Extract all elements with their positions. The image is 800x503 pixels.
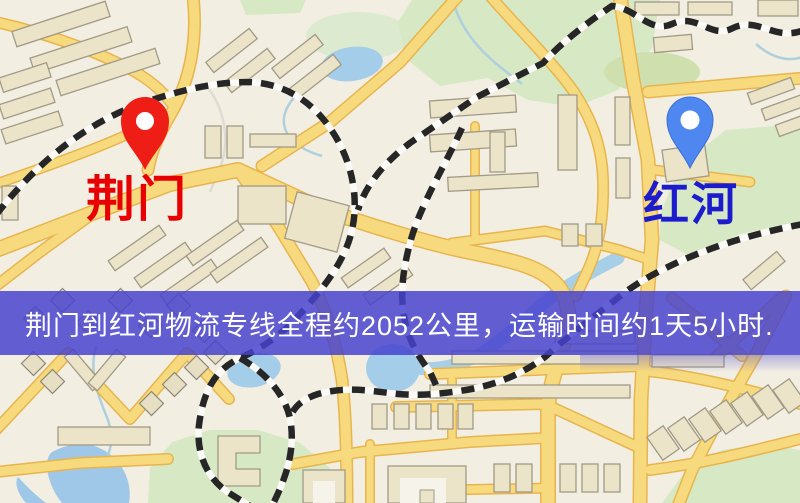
- building: [394, 404, 409, 429]
- building: [458, 404, 473, 429]
- building: [688, 2, 732, 15]
- building: [416, 404, 431, 429]
- building: [615, 97, 630, 145]
- building: [558, 95, 577, 170]
- origin-marker-red-pin-icon: [119, 96, 171, 172]
- route-info-banner: 荆门到红河物流专线全程约2052公里，运输时间约1天5小时.: [0, 291, 800, 355]
- building: [604, 464, 620, 492]
- destination-marker-blue-pin-icon: [665, 96, 715, 170]
- building: [516, 464, 532, 492]
- map-image: [0, 0, 800, 503]
- building: [438, 404, 453, 429]
- building: [58, 427, 150, 445]
- building: [653, 34, 692, 52]
- building: [372, 404, 387, 429]
- building: [586, 224, 602, 246]
- building: [560, 464, 576, 492]
- route-info-text: 荆门到红河物流专线全程约2052公里，运输时间约1天5小时.: [25, 304, 774, 343]
- building: [238, 186, 286, 224]
- building: [758, 0, 798, 16]
- building: [582, 464, 598, 492]
- building: [494, 464, 510, 492]
- logistics-route-map: 荆门 红河 荆门到红河物流专线全程约2052公里，运输时间约1天5小时.: [0, 0, 800, 503]
- building: [562, 224, 578, 246]
- banner-shadow: [580, 355, 800, 372]
- building: [490, 132, 505, 172]
- origin-label: 荆门: [86, 176, 188, 225]
- building: [205, 126, 221, 158]
- building: [227, 126, 243, 158]
- building: [635, 2, 679, 15]
- building: [616, 158, 630, 198]
- building: [250, 134, 296, 147]
- destination-label: 红河: [643, 181, 739, 227]
